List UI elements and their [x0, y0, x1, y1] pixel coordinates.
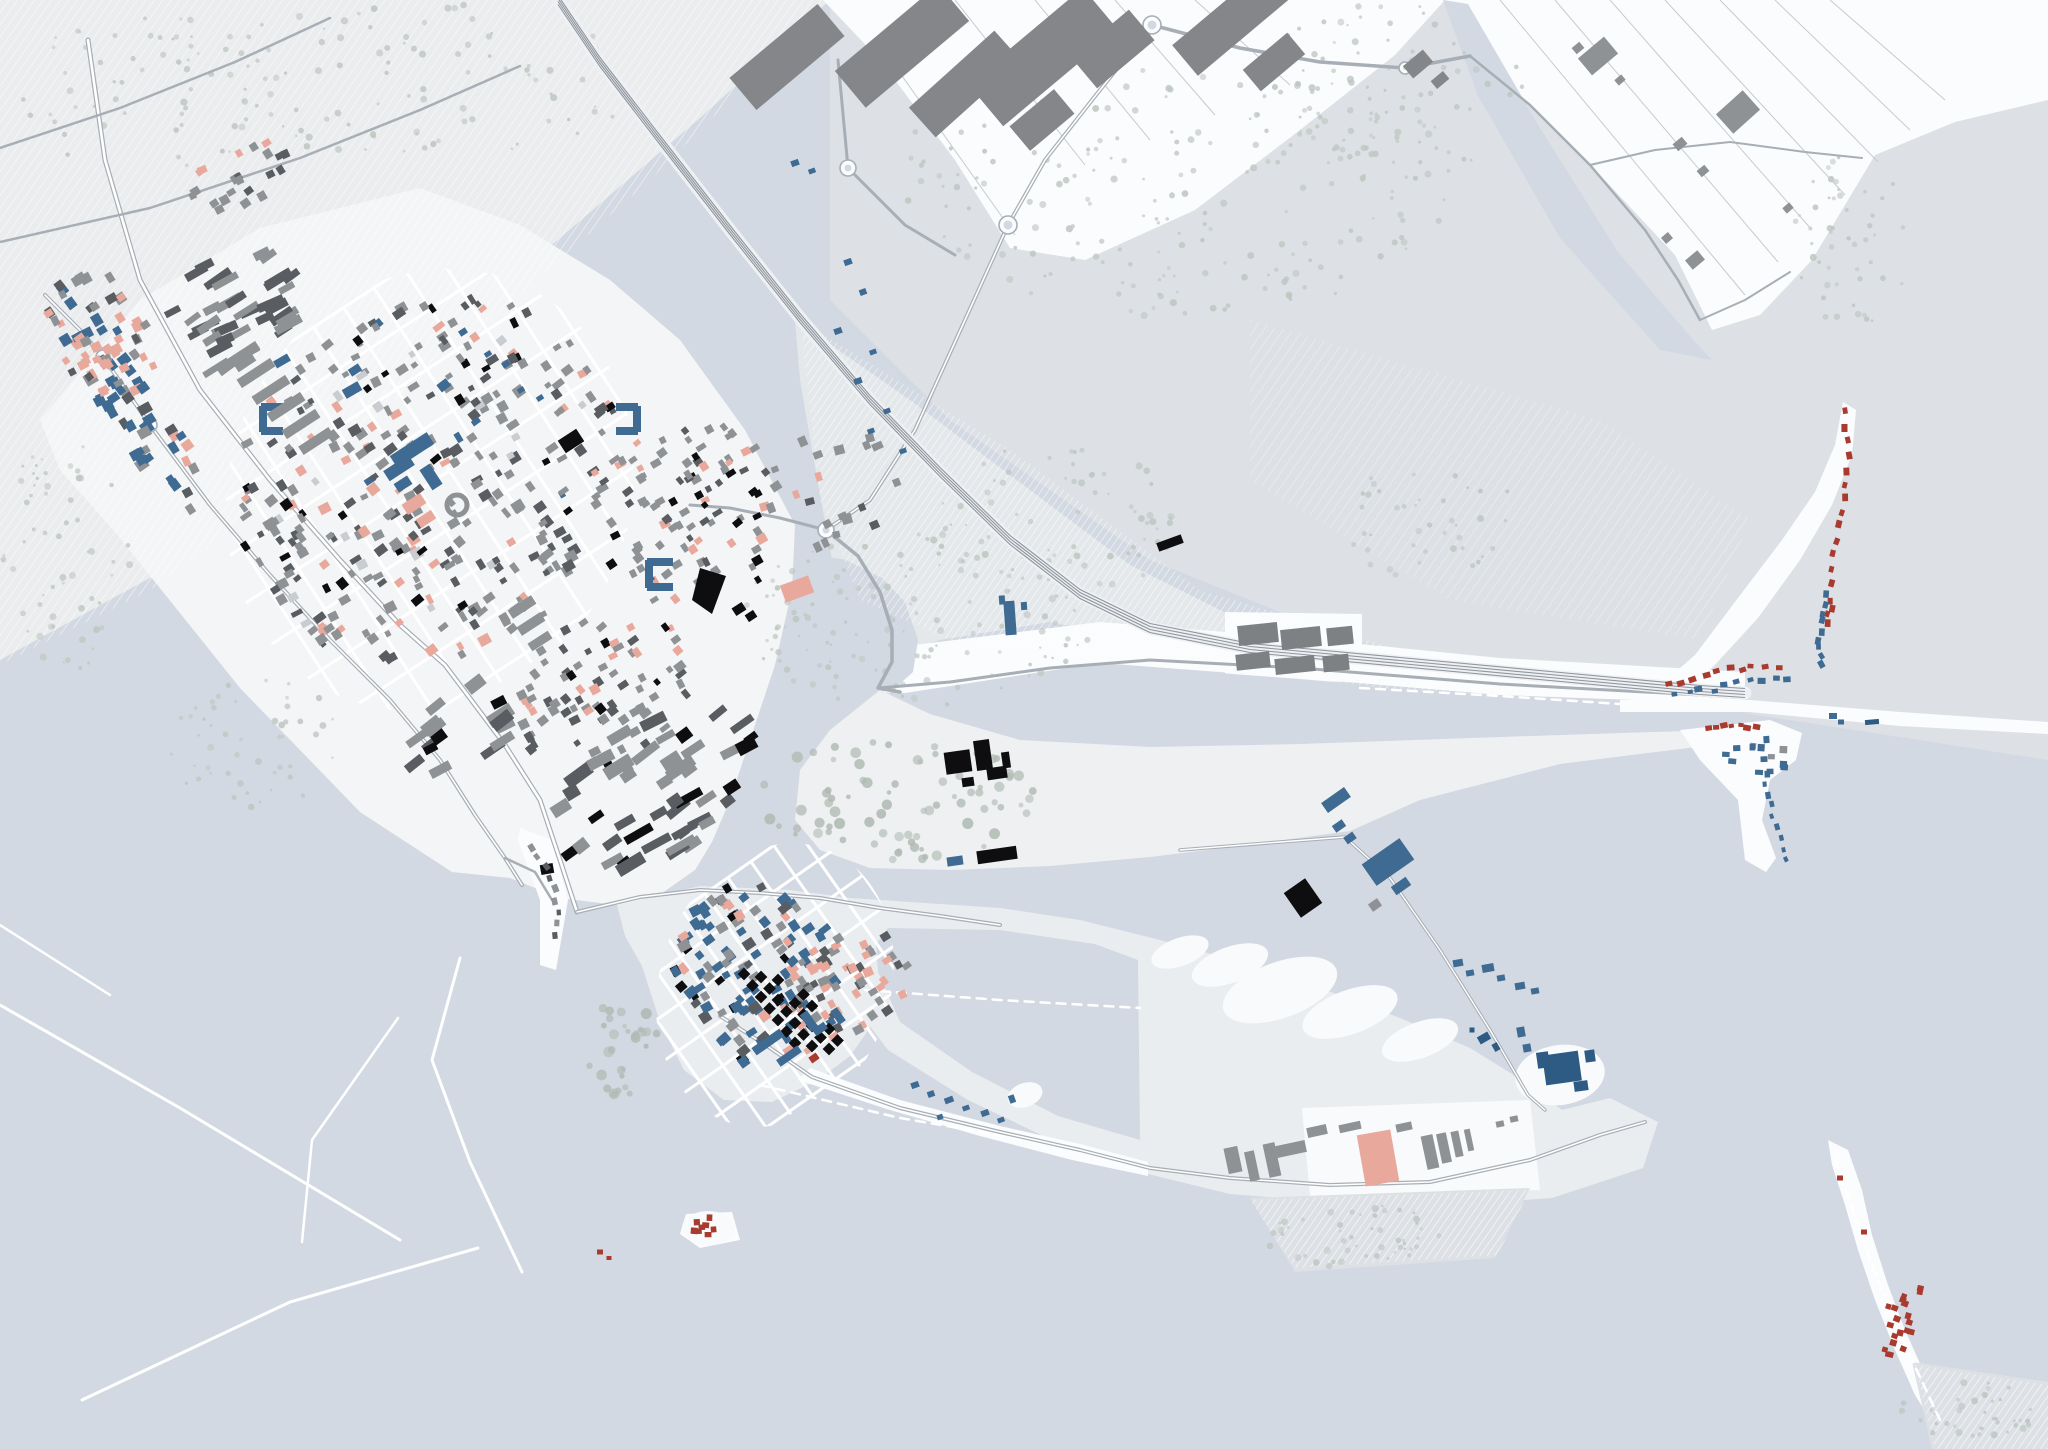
map-viewport	[0, 0, 2048, 1449]
harbor-town-map-svg	[0, 0, 2048, 1449]
